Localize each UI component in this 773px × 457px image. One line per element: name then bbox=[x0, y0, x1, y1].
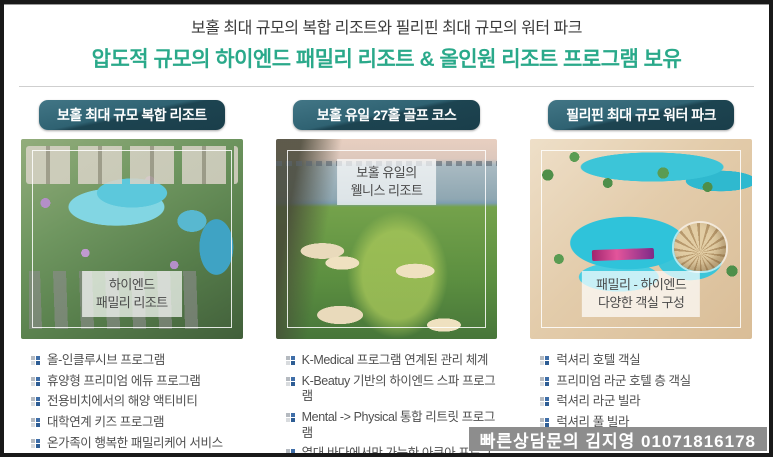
bullet-list-waterpark: 럭셔리 호텔 객실 프리미엄 라군 호텔 층 객실 럭셔리 라군 빌라 럭셔리 … bbox=[530, 353, 752, 431]
grid-squares-icon bbox=[540, 356, 549, 365]
hotel-buildings-shape bbox=[26, 146, 238, 184]
column-waterpark: 필리핀 최대 규모 워터 파크 패밀리 - 하이엔드 다양한 객실 구성 럭셔리… bbox=[530, 100, 752, 457]
grid-squares-icon bbox=[540, 377, 549, 386]
list-item: 휴양형 프리미엄 에듀 프로그램 bbox=[31, 374, 243, 390]
bullet-list-golf: K-Medical 프로그램 연계된 관리 체계 K-Beatuy 기반의 하이… bbox=[276, 353, 498, 457]
grid-squares-icon bbox=[31, 439, 40, 448]
caption-line: 패밀리 - 하이엔드 bbox=[596, 277, 686, 292]
list-item: 전용비치에서의 해양 액티비티 bbox=[31, 394, 243, 410]
grid-squares-icon bbox=[31, 418, 40, 427]
ribbon-resort: 보홀 최대 규모 복합 리조트 bbox=[39, 100, 225, 130]
list-item: K-Medical 프로그램 연계된 관리 체계 bbox=[286, 353, 498, 369]
list-item-label: 온가족이 행복한 패밀리케어 서비스 bbox=[47, 436, 223, 452]
grid-squares-icon bbox=[31, 356, 40, 365]
photo-caption: 하이엔드 패밀리 리조트 bbox=[82, 271, 182, 317]
stage-screen-shape bbox=[592, 248, 654, 261]
list-item: K-Beatuy 기반의 하이엔드 스파 프로그램 bbox=[286, 374, 498, 405]
list-item-label: 휴양형 프리미엄 에듀 프로그램 bbox=[47, 374, 201, 390]
list-item: 올-인클루시브 프로그램 bbox=[31, 353, 243, 369]
caption-line: 하이엔드 bbox=[109, 277, 155, 292]
photo-caption: 패밀리 - 하이엔드 다양한 객실 구성 bbox=[582, 271, 700, 317]
list-item: 대학연계 키즈 프로그램 bbox=[31, 415, 243, 431]
caption-line: 다양한 객실 구성 bbox=[598, 295, 684, 310]
caption-line: 패밀리 리조트 bbox=[96, 295, 168, 310]
grid-squares-icon bbox=[286, 413, 295, 422]
caption-line: 웰니스 리조트 bbox=[351, 183, 423, 198]
header: 보홀 최대 규모의 복합 리조트와 필리핀 최대 규모의 워터 파크 압도적 규… bbox=[4, 4, 769, 87]
grid-squares-icon bbox=[286, 377, 295, 386]
photo-caption: 보홀 유일의 웰니스 리조트 bbox=[337, 159, 437, 205]
bullet-list-resort: 올-인클루시브 프로그램 휴양형 프리미엄 에듀 프로그램 전용비치에서의 해양… bbox=[21, 353, 243, 451]
golf-course-photo: 보홀 유일의 웰니스 리조트 bbox=[276, 139, 498, 339]
column-resort: 보홀 최대 규모 복합 리조트 하이엔드 패밀리 리조트 올-인클루시브 프로그… bbox=[21, 100, 243, 457]
subtitle: 보홀 최대 규모의 복합 리조트와 필리핀 최대 규모의 워터 파크 bbox=[4, 14, 769, 38]
list-item-label: 럭셔리 호텔 객실 bbox=[556, 353, 640, 369]
list-item: 럭셔리 라군 빌라 bbox=[540, 394, 752, 410]
list-item: Mental -> Physical 통합 리트릿 프로그램 bbox=[286, 410, 498, 441]
grid-squares-icon bbox=[31, 397, 40, 406]
list-item: 프리미엄 라군 호텔 층 객실 bbox=[540, 374, 752, 390]
list-item-label: K-Beatuy 기반의 하이엔드 스파 프로그램 bbox=[302, 374, 498, 405]
list-item: 열대 바다에서만 가능한 아쿠아 프로그램 bbox=[286, 446, 498, 457]
list-item-label: 대학연계 키즈 프로그램 bbox=[47, 415, 164, 431]
caption-line: 보홀 유일의 bbox=[356, 165, 416, 180]
water-park-aerial-photo: 패밀리 - 하이엔드 다양한 객실 구성 bbox=[530, 139, 752, 339]
column-golf: 보홀 유일 27홀 골프 코스 보홀 유일의 웰니스 리조트 K-Medical… bbox=[276, 100, 498, 457]
shell-dome-shape bbox=[674, 223, 726, 271]
list-item-label: K-Medical 프로그램 연계된 관리 체계 bbox=[302, 353, 488, 369]
grid-squares-icon bbox=[31, 377, 40, 386]
promo-slide: 보홀 최대 규모의 복합 리조트와 필리핀 최대 규모의 워터 파크 압도적 규… bbox=[0, 0, 773, 457]
list-item-label: 럭셔리 라군 빌라 bbox=[556, 394, 640, 410]
columns-row: 보홀 최대 규모 복합 리조트 하이엔드 패밀리 리조트 올-인클루시브 프로그… bbox=[4, 87, 769, 457]
list-item-label: 프리미엄 라군 호텔 층 객실 bbox=[556, 374, 690, 390]
list-item-label: 전용비치에서의 해양 액티비티 bbox=[47, 394, 197, 410]
list-item-label: 올-인클루시브 프로그램 bbox=[47, 353, 165, 369]
grid-squares-icon bbox=[286, 449, 295, 457]
resort-aerial-photo: 하이엔드 패밀리 리조트 bbox=[21, 139, 243, 339]
list-item: 럭셔리 호텔 객실 bbox=[540, 353, 752, 369]
grid-squares-icon bbox=[540, 397, 549, 406]
page-title: 압도적 규모의 하이엔드 패밀리 리조트 & 올인원 리조트 프로그램 보유 bbox=[4, 43, 769, 73]
grid-squares-icon bbox=[286, 356, 295, 365]
ribbon-waterpark: 필리핀 최대 규모 워터 파크 bbox=[548, 100, 734, 130]
ribbon-golf: 보홀 유일 27홀 골프 코스 bbox=[293, 100, 479, 130]
list-item: 온가족이 행복한 패밀리케어 서비스 bbox=[31, 436, 243, 452]
contact-banner: 빠른상담문의 김지영 01071816178 bbox=[469, 427, 767, 451]
